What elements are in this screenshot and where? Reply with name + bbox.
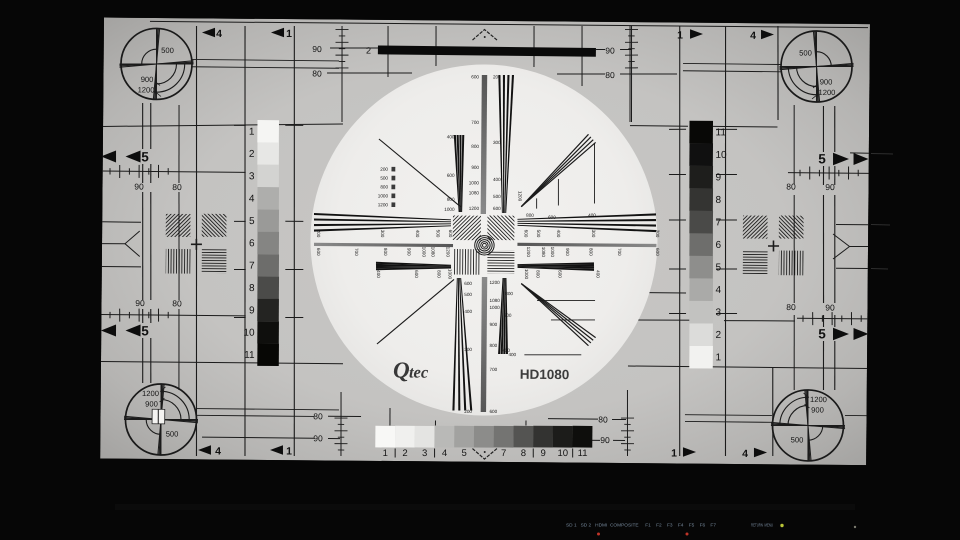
- svg-text:200: 200: [316, 230, 321, 238]
- svg-text:600: 600: [523, 230, 528, 238]
- svg-text:90: 90: [313, 433, 323, 443]
- svg-text:800: 800: [505, 291, 513, 296]
- svg-text:1080: 1080: [490, 298, 501, 303]
- svg-text:80: 80: [786, 302, 796, 312]
- svg-text:1200: 1200: [378, 202, 389, 207]
- svg-text:600: 600: [493, 206, 501, 211]
- svg-text:3: 3: [422, 448, 427, 459]
- svg-text:800: 800: [383, 248, 388, 256]
- svg-text:500: 500: [166, 429, 179, 438]
- svg-text:90: 90: [605, 45, 615, 55]
- svg-text:RETURN MENU: RETURN MENU: [751, 523, 773, 528]
- svg-text:90: 90: [134, 181, 144, 191]
- svg-text:4: 4: [715, 285, 721, 296]
- svg-text:1000: 1000: [444, 207, 455, 212]
- svg-text:4: 4: [442, 448, 447, 459]
- svg-text:2: 2: [249, 149, 255, 160]
- svg-text:500: 500: [435, 230, 440, 238]
- svg-text:1000: 1000: [489, 305, 500, 310]
- svg-text:1: 1: [671, 447, 677, 459]
- svg-text:500: 500: [536, 230, 541, 238]
- svg-text:1000: 1000: [524, 269, 529, 280]
- svg-text:1: 1: [383, 448, 388, 459]
- svg-text:90: 90: [312, 44, 322, 54]
- svg-text:7: 7: [501, 448, 506, 459]
- svg-text:10: 10: [243, 328, 255, 339]
- svg-text:6: 6: [715, 240, 721, 251]
- svg-text:800: 800: [588, 248, 593, 256]
- svg-text:10: 10: [557, 448, 568, 459]
- svg-text:600: 600: [464, 281, 472, 286]
- svg-text:700: 700: [354, 248, 359, 256]
- svg-text:1080: 1080: [469, 190, 480, 195]
- svg-text:4: 4: [249, 194, 255, 205]
- svg-text:5: 5: [141, 149, 149, 164]
- svg-text:5: 5: [141, 323, 149, 338]
- svg-text:400: 400: [493, 177, 501, 182]
- svg-text:9: 9: [715, 172, 721, 183]
- svg-text:900: 900: [811, 405, 824, 414]
- svg-text:1200: 1200: [445, 247, 450, 258]
- svg-text:1000: 1000: [421, 247, 426, 258]
- svg-text:400: 400: [588, 213, 596, 218]
- svg-text:300: 300: [493, 140, 501, 145]
- svg-text:300: 300: [380, 230, 385, 238]
- svg-text:300: 300: [464, 347, 472, 352]
- svg-text:5: 5: [715, 262, 721, 273]
- svg-text:3: 3: [249, 171, 255, 182]
- svg-text:6: 6: [249, 238, 255, 249]
- svg-text:800: 800: [526, 213, 534, 218]
- svg-text:1200: 1200: [489, 280, 500, 285]
- svg-text:11: 11: [578, 448, 588, 459]
- svg-text:80: 80: [598, 414, 608, 424]
- svg-text:1200: 1200: [517, 191, 522, 202]
- svg-text:4: 4: [215, 445, 221, 457]
- svg-text:400: 400: [415, 230, 420, 238]
- svg-text:1200: 1200: [818, 88, 835, 97]
- svg-text:1: 1: [286, 28, 292, 40]
- svg-text:11: 11: [715, 127, 726, 138]
- svg-text:900: 900: [471, 165, 479, 170]
- svg-text:1: 1: [249, 127, 255, 138]
- svg-text:8: 8: [521, 448, 526, 459]
- svg-text:80: 80: [605, 70, 615, 80]
- svg-text:8: 8: [715, 195, 721, 206]
- svg-text:11: 11: [244, 350, 255, 361]
- svg-text:400: 400: [376, 270, 381, 278]
- svg-text:80: 80: [312, 68, 322, 78]
- svg-text:600: 600: [447, 173, 455, 178]
- svg-text:SD 1 SD 2 HDMI COMPOSITE: SD 1 SD 2 HDMI COMPOSITE F1 F2 F3 F4 F5 …: [566, 523, 717, 528]
- svg-text:1000: 1000: [447, 269, 452, 280]
- svg-text:1080: 1080: [430, 247, 435, 258]
- svg-text:900: 900: [490, 322, 498, 327]
- svg-text:500: 500: [493, 194, 501, 199]
- svg-text:600: 600: [557, 270, 562, 278]
- svg-text:90: 90: [600, 435, 610, 445]
- svg-text:7: 7: [249, 261, 255, 272]
- svg-text:1200: 1200: [469, 206, 480, 211]
- svg-text:500: 500: [161, 46, 174, 55]
- svg-text:10: 10: [715, 150, 727, 161]
- svg-text:700: 700: [617, 248, 622, 256]
- svg-text:90: 90: [825, 303, 835, 313]
- svg-text:4: 4: [750, 30, 756, 42]
- svg-text:tec: tec: [409, 362, 429, 381]
- svg-text:5: 5: [818, 151, 826, 166]
- svg-text:500: 500: [464, 292, 472, 297]
- svg-text:800: 800: [471, 144, 479, 149]
- svg-text:80: 80: [172, 298, 182, 308]
- svg-text:900: 900: [406, 248, 411, 256]
- svg-text:600: 600: [655, 248, 660, 256]
- svg-text:600: 600: [489, 409, 497, 414]
- svg-text:2: 2: [366, 45, 371, 55]
- svg-text:HD1080: HD1080: [520, 367, 570, 382]
- svg-text:500: 500: [791, 435, 804, 444]
- svg-text:5: 5: [462, 448, 467, 459]
- svg-text:200: 200: [464, 409, 472, 414]
- svg-text:9: 9: [540, 448, 545, 459]
- svg-text:1000: 1000: [469, 180, 480, 185]
- svg-text:80: 80: [172, 182, 182, 192]
- svg-text:800: 800: [436, 270, 441, 278]
- svg-text:1200: 1200: [526, 247, 531, 258]
- svg-text:5: 5: [249, 216, 255, 227]
- svg-text:80: 80: [786, 181, 796, 191]
- svg-text:4: 4: [216, 28, 222, 40]
- svg-text:200: 200: [493, 74, 501, 79]
- svg-text:8: 8: [249, 283, 255, 294]
- svg-text:600: 600: [448, 230, 453, 238]
- svg-text:900: 900: [141, 75, 154, 84]
- svg-text:90: 90: [825, 182, 835, 192]
- svg-text:600: 600: [316, 248, 321, 256]
- svg-text:300: 300: [591, 230, 596, 238]
- svg-text:1: 1: [286, 446, 292, 458]
- svg-text:5: 5: [818, 326, 826, 341]
- svg-text:1: 1: [677, 30, 683, 42]
- svg-text:800: 800: [380, 185, 388, 190]
- svg-text:500: 500: [799, 48, 812, 57]
- svg-text:800: 800: [535, 270, 540, 278]
- svg-text:600: 600: [414, 270, 419, 278]
- svg-text:1200: 1200: [810, 395, 827, 404]
- svg-text:7: 7: [715, 217, 721, 228]
- svg-text:900: 900: [565, 248, 570, 256]
- svg-text:600: 600: [504, 313, 512, 318]
- svg-text:1080: 1080: [541, 247, 546, 258]
- svg-text:200: 200: [380, 167, 388, 172]
- svg-text:600: 600: [548, 215, 556, 220]
- svg-text:80: 80: [313, 411, 323, 421]
- svg-text:Q: Q: [393, 358, 410, 383]
- svg-text:400: 400: [595, 270, 600, 278]
- svg-text:400: 400: [502, 348, 510, 353]
- svg-text:500: 500: [380, 176, 388, 181]
- svg-text:1200: 1200: [138, 85, 155, 94]
- svg-text:1200: 1200: [142, 389, 159, 398]
- svg-text:600: 600: [471, 74, 479, 79]
- svg-text:1000: 1000: [378, 193, 389, 198]
- svg-text:1: 1: [716, 352, 722, 363]
- svg-text:4: 4: [742, 448, 748, 460]
- svg-text:2: 2: [402, 448, 407, 459]
- svg-text:900: 900: [820, 77, 833, 86]
- svg-text:2: 2: [716, 330, 722, 341]
- svg-text:90: 90: [135, 298, 145, 308]
- svg-text:1000: 1000: [550, 247, 555, 258]
- svg-text:700: 700: [490, 367, 498, 372]
- svg-text:700: 700: [471, 120, 479, 125]
- svg-text:400: 400: [556, 230, 561, 238]
- svg-text:800: 800: [490, 343, 498, 348]
- svg-text:200: 200: [655, 230, 660, 238]
- svg-text:9: 9: [249, 305, 255, 316]
- svg-text:400: 400: [464, 309, 472, 314]
- svg-text:3: 3: [715, 307, 721, 318]
- svg-text:900: 900: [145, 399, 158, 408]
- svg-text:400: 400: [447, 134, 455, 139]
